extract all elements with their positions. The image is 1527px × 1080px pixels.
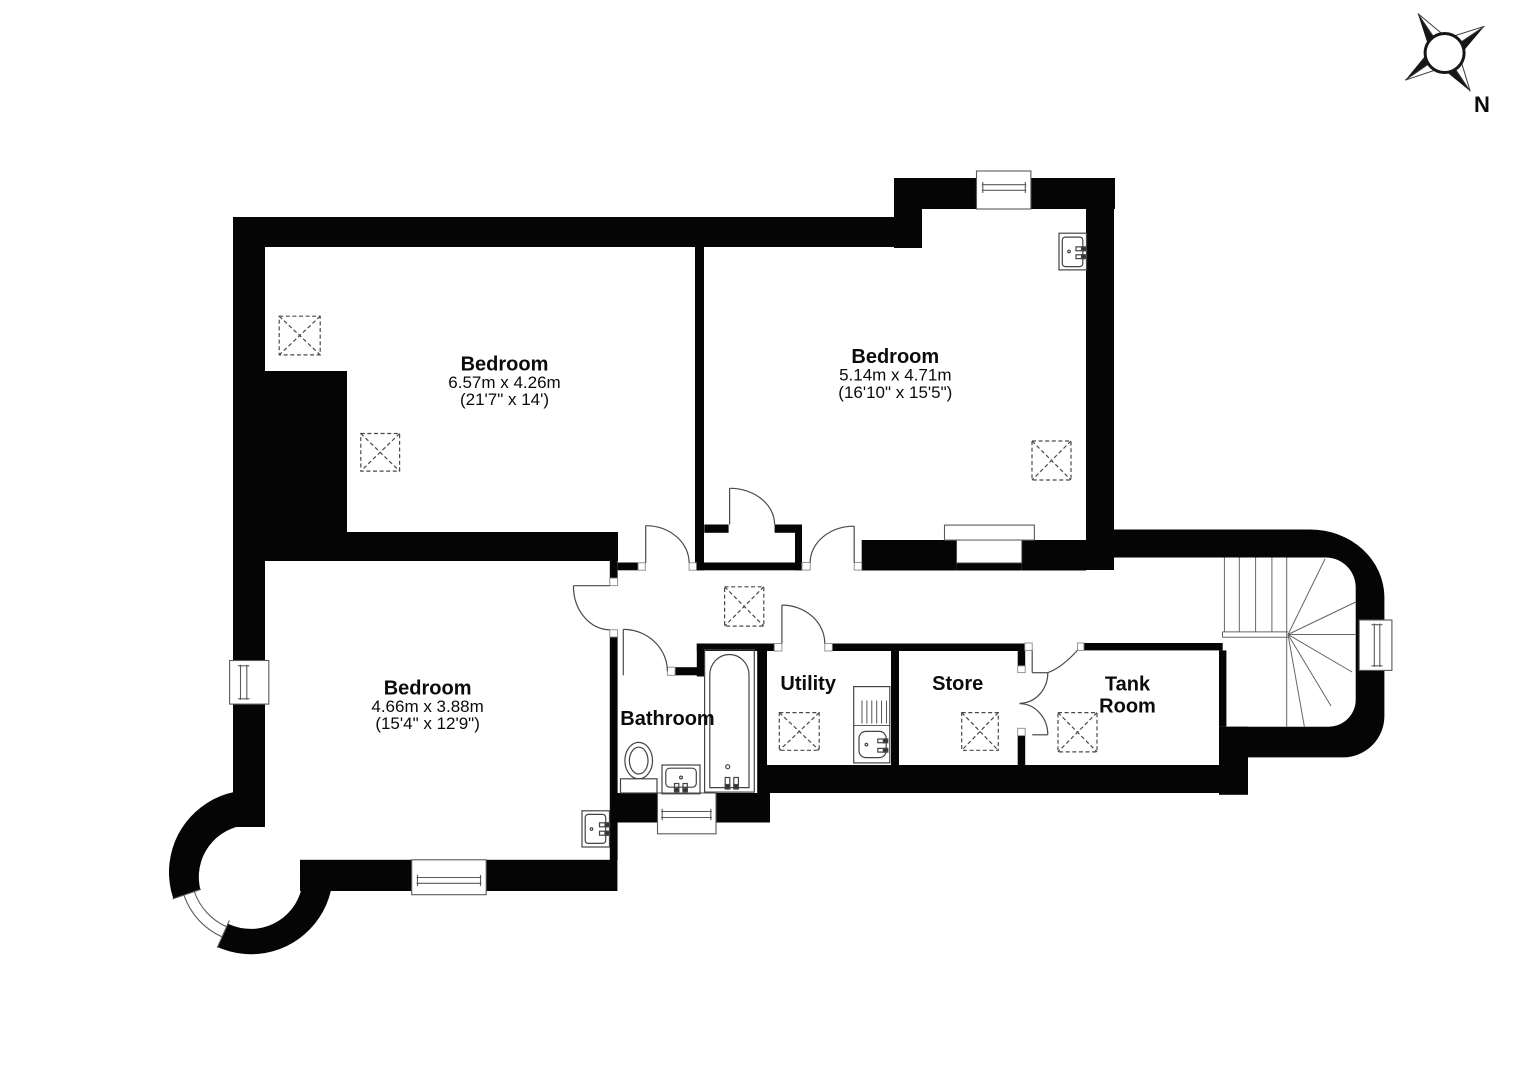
svg-text:(21'7" x 14'): (21'7" x 14') bbox=[460, 390, 549, 409]
svg-text:6.57m x 4.26m: 6.57m x 4.26m bbox=[448, 373, 560, 392]
svg-text:Store: Store bbox=[932, 673, 983, 695]
svg-text:5.14m x 4.71m: 5.14m x 4.71m bbox=[839, 365, 951, 384]
svg-text:Bathroom: Bathroom bbox=[620, 708, 714, 730]
svg-text:Room: Room bbox=[1099, 695, 1156, 717]
svg-text:4.66m x 3.88m: 4.66m x 3.88m bbox=[371, 697, 483, 716]
svg-text:(16'10" x 15'5"): (16'10" x 15'5") bbox=[838, 383, 952, 402]
svg-text:(15'4" x 12'9"): (15'4" x 12'9") bbox=[375, 714, 480, 733]
svg-text:N: N bbox=[1474, 92, 1490, 117]
svg-text:Utility: Utility bbox=[780, 673, 836, 695]
svg-text:Tank: Tank bbox=[1105, 673, 1151, 695]
